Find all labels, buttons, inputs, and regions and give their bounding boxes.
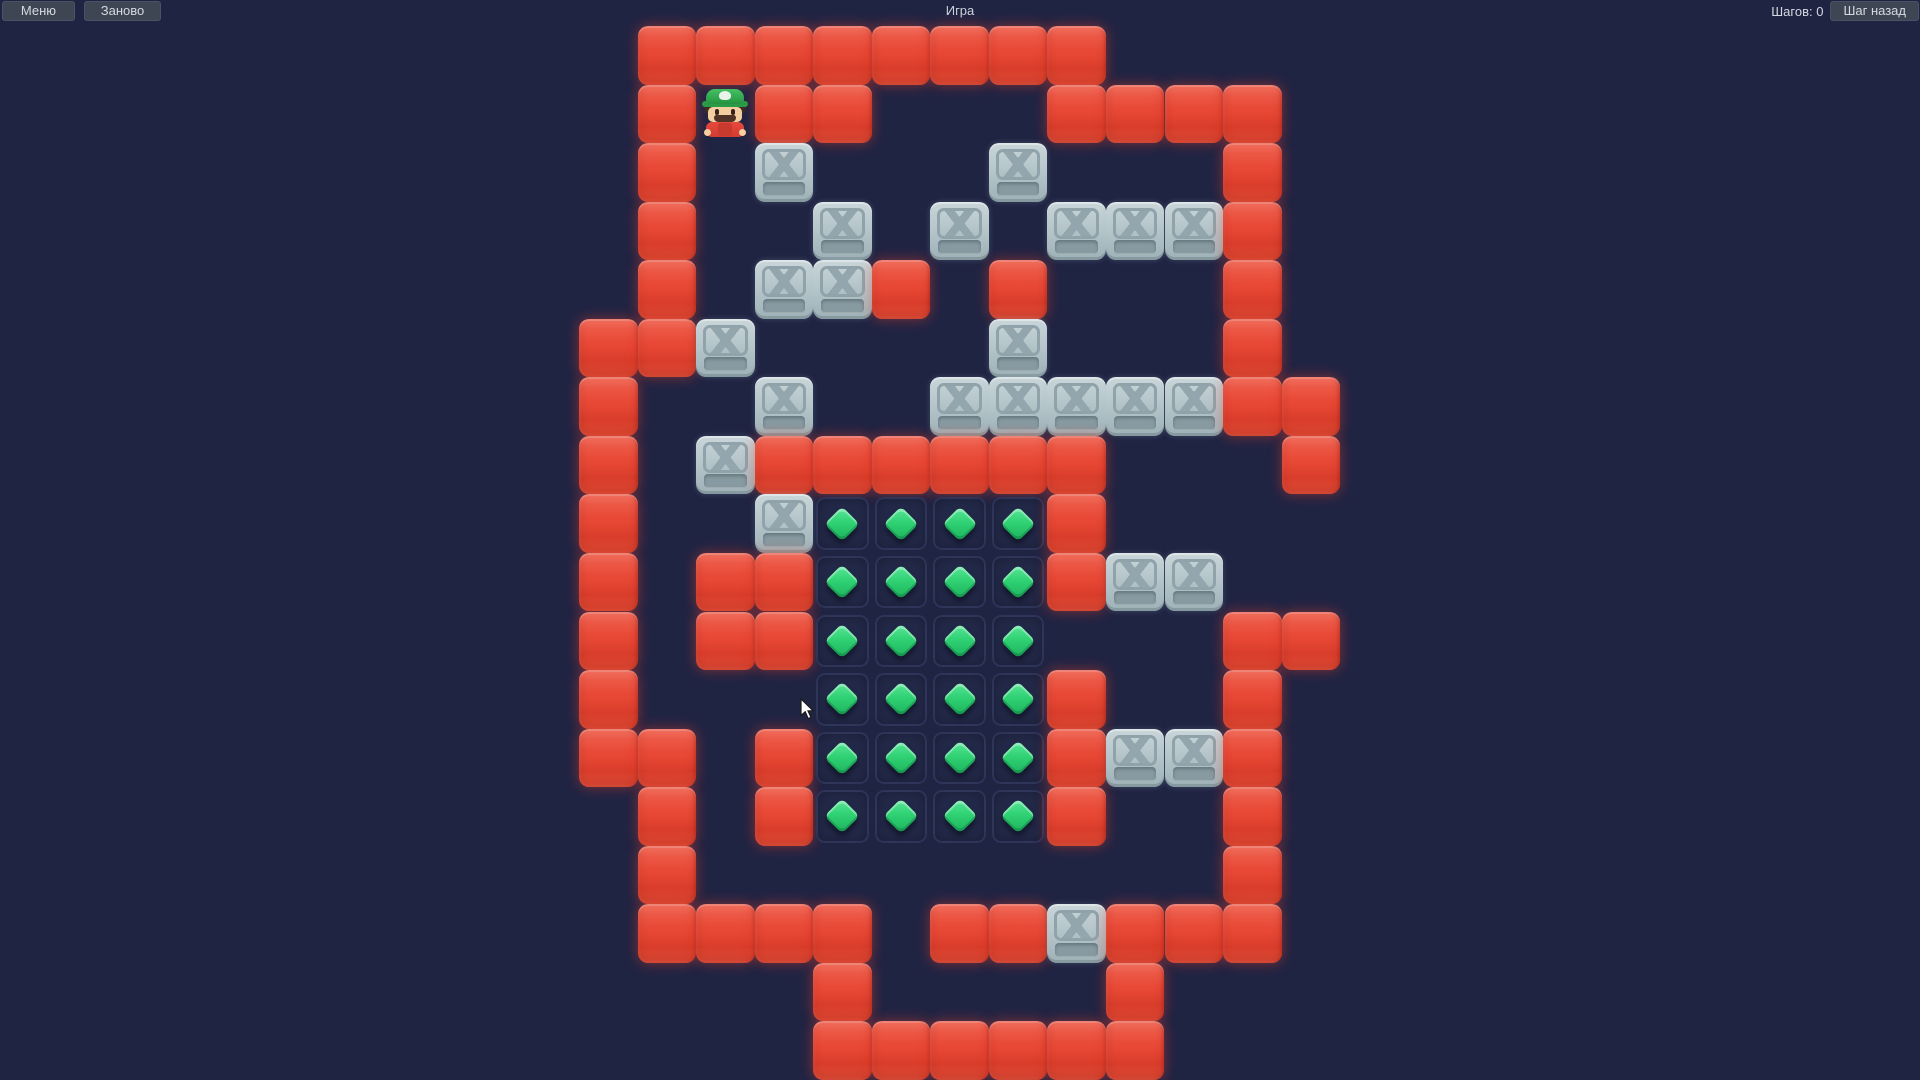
crate[interactable]: [813, 202, 872, 261]
wall-block: [638, 319, 697, 378]
crate[interactable]: [989, 377, 1048, 436]
crate[interactable]: [989, 143, 1048, 202]
wall-block: [755, 612, 814, 671]
wall-block: [1047, 553, 1106, 612]
gem-tile[interactable]: [875, 673, 928, 726]
player-eye-r-icon: [731, 109, 735, 115]
wall-block: [696, 553, 755, 612]
crate[interactable]: [930, 377, 989, 436]
wall-block: [813, 963, 872, 1022]
player-character[interactable]: [702, 89, 748, 139]
gem-icon: [942, 799, 977, 834]
gem-tile[interactable]: [875, 556, 928, 609]
wall-block: [1165, 85, 1224, 144]
crate[interactable]: [1165, 553, 1224, 612]
gem-icon: [825, 506, 860, 541]
wall-block: [813, 904, 872, 963]
gem-icon: [942, 623, 977, 658]
crate[interactable]: [1047, 377, 1106, 436]
wall-block: [638, 85, 697, 144]
gem-tile[interactable]: [933, 497, 986, 550]
wall-block: [989, 904, 1048, 963]
wall-block: [930, 1021, 989, 1080]
crate[interactable]: [1165, 377, 1224, 436]
wall-block: [1223, 85, 1282, 144]
crate[interactable]: [696, 436, 755, 495]
wall-block: [696, 26, 755, 85]
game-board[interactable]: [579, 26, 1340, 1080]
crate[interactable]: [813, 260, 872, 319]
wall-block: [1223, 904, 1282, 963]
wall-block: [1047, 729, 1106, 788]
player-emblem-icon: [719, 91, 731, 100]
wall-block: [638, 26, 697, 85]
wall-block: [755, 553, 814, 612]
wall-block: [755, 436, 814, 495]
gem-icon: [1000, 506, 1035, 541]
gem-tile[interactable]: [933, 615, 986, 668]
gem-tile[interactable]: [816, 497, 869, 550]
wall-block: [1223, 260, 1282, 319]
wall-block: [872, 260, 931, 319]
wall-block: [1047, 85, 1106, 144]
wall-block: [1106, 904, 1165, 963]
crate[interactable]: [1047, 904, 1106, 963]
gem-tile[interactable]: [992, 497, 1045, 550]
wall-block: [930, 436, 989, 495]
gem-icon: [883, 799, 918, 834]
wall-block: [1165, 904, 1224, 963]
gem-tile[interactable]: [933, 790, 986, 843]
top-bar: Меню Заново Игра Шагов: 0 Шаг назад: [0, 0, 1920, 24]
wall-block: [755, 26, 814, 85]
wall-block: [813, 85, 872, 144]
player-strap-icon: [718, 123, 732, 136]
wall-block: [579, 553, 638, 612]
steps-counter: Шагов: 0: [1771, 4, 1823, 19]
wall-block: [638, 260, 697, 319]
gem-icon: [942, 740, 977, 775]
gem-tile[interactable]: [875, 790, 928, 843]
wall-block: [755, 729, 814, 788]
gem-tile[interactable]: [933, 673, 986, 726]
wall-block: [638, 143, 697, 202]
wall-block: [930, 904, 989, 963]
wall-block: [1106, 1021, 1165, 1080]
crate[interactable]: [1047, 202, 1106, 261]
wall-block: [1223, 729, 1282, 788]
gem-icon: [883, 623, 918, 658]
gem-icon: [825, 799, 860, 834]
gem-icon: [1000, 564, 1035, 599]
crate[interactable]: [1106, 377, 1165, 436]
gem-icon: [1000, 682, 1035, 717]
wall-block: [696, 904, 755, 963]
wall-block: [872, 26, 931, 85]
wall-block: [755, 904, 814, 963]
wall-block: [755, 787, 814, 846]
wall-block: [1223, 612, 1282, 671]
steps-group: Шагов: 0 Шаг назад: [1771, 1, 1919, 21]
gem-tile[interactable]: [875, 497, 928, 550]
crate[interactable]: [1106, 729, 1165, 788]
crate[interactable]: [1106, 202, 1165, 261]
wall-block: [1223, 377, 1282, 436]
wall-block: [813, 26, 872, 85]
wall-block: [579, 670, 638, 729]
wall-block: [696, 612, 755, 671]
crate[interactable]: [696, 319, 755, 378]
gem-icon: [883, 682, 918, 717]
wall-block: [1047, 787, 1106, 846]
wall-block: [638, 202, 697, 261]
gem-tile[interactable]: [816, 732, 869, 785]
wall-block: [638, 904, 697, 963]
wall-block: [579, 729, 638, 788]
gem-icon: [942, 682, 977, 717]
wall-block: [1223, 670, 1282, 729]
undo-step-button[interactable]: Шаг назад: [1830, 1, 1919, 21]
wall-block: [1282, 436, 1341, 495]
wall-block: [579, 612, 638, 671]
gem-tile[interactable]: [816, 790, 869, 843]
gem-icon: [1000, 740, 1035, 775]
gem-icon: [883, 506, 918, 541]
wall-block: [638, 846, 697, 905]
wall-block: [989, 26, 1048, 85]
gem-icon: [825, 682, 860, 717]
gem-icon: [825, 740, 860, 775]
gem-tile[interactable]: [816, 673, 869, 726]
gem-icon: [1000, 623, 1035, 658]
wall-block: [579, 436, 638, 495]
wall-block: [1282, 377, 1341, 436]
gem-icon: [883, 740, 918, 775]
wall-block: [813, 436, 872, 495]
crate[interactable]: [989, 319, 1048, 378]
gem-tile[interactable]: [816, 556, 869, 609]
player-eye-l-icon: [715, 109, 719, 115]
wall-block: [813, 1021, 872, 1080]
gem-icon: [825, 564, 860, 599]
wall-block: [1282, 612, 1341, 671]
wall-block: [1223, 846, 1282, 905]
wall-block: [638, 787, 697, 846]
gem-icon: [883, 564, 918, 599]
wall-block: [872, 436, 931, 495]
wall-block: [1047, 670, 1106, 729]
gem-tile[interactable]: [992, 556, 1045, 609]
crate[interactable]: [930, 202, 989, 261]
wall-block: [1047, 26, 1106, 85]
wall-block: [579, 319, 638, 378]
crate[interactable]: [755, 143, 814, 202]
crate[interactable]: [755, 494, 814, 553]
gem-tile[interactable]: [992, 615, 1045, 668]
gem-tile[interactable]: [875, 615, 928, 668]
gem-tile[interactable]: [992, 732, 1045, 785]
wall-block: [1223, 202, 1282, 261]
wall-block: [989, 260, 1048, 319]
wall-block: [1223, 787, 1282, 846]
wall-block: [579, 494, 638, 553]
crate[interactable]: [755, 377, 814, 436]
gem-icon: [942, 564, 977, 599]
gem-tile[interactable]: [992, 673, 1045, 726]
gem-icon: [825, 623, 860, 658]
gem-tile[interactable]: [816, 615, 869, 668]
player-cell[interactable]: [696, 85, 755, 144]
gem-icon: [942, 506, 977, 541]
wall-block: [755, 85, 814, 144]
gem-tile[interactable]: [992, 790, 1045, 843]
wall-block: [1047, 1021, 1106, 1080]
wall-block: [1106, 963, 1165, 1022]
crate[interactable]: [1106, 553, 1165, 612]
wall-block: [1223, 319, 1282, 378]
gem-icon: [1000, 799, 1035, 834]
wall-block: [930, 26, 989, 85]
wall-block: [872, 1021, 931, 1080]
gem-tile[interactable]: [875, 732, 928, 785]
wall-block: [989, 1021, 1048, 1080]
page-title: Игра: [0, 3, 1920, 18]
player-hand-r-icon: [739, 129, 746, 136]
wall-block: [1223, 143, 1282, 202]
crate[interactable]: [1165, 729, 1224, 788]
crate[interactable]: [755, 260, 814, 319]
wall-block: [579, 377, 638, 436]
wall-block: [989, 436, 1048, 495]
wall-block: [1047, 436, 1106, 495]
wall-block: [638, 729, 697, 788]
gem-tile[interactable]: [933, 556, 986, 609]
player-stache-icon: [714, 115, 736, 122]
crate[interactable]: [1165, 202, 1224, 261]
wall-block: [1106, 85, 1165, 144]
player-hand-l-icon: [704, 129, 711, 136]
gem-tile[interactable]: [933, 732, 986, 785]
wall-block: [1047, 494, 1106, 553]
